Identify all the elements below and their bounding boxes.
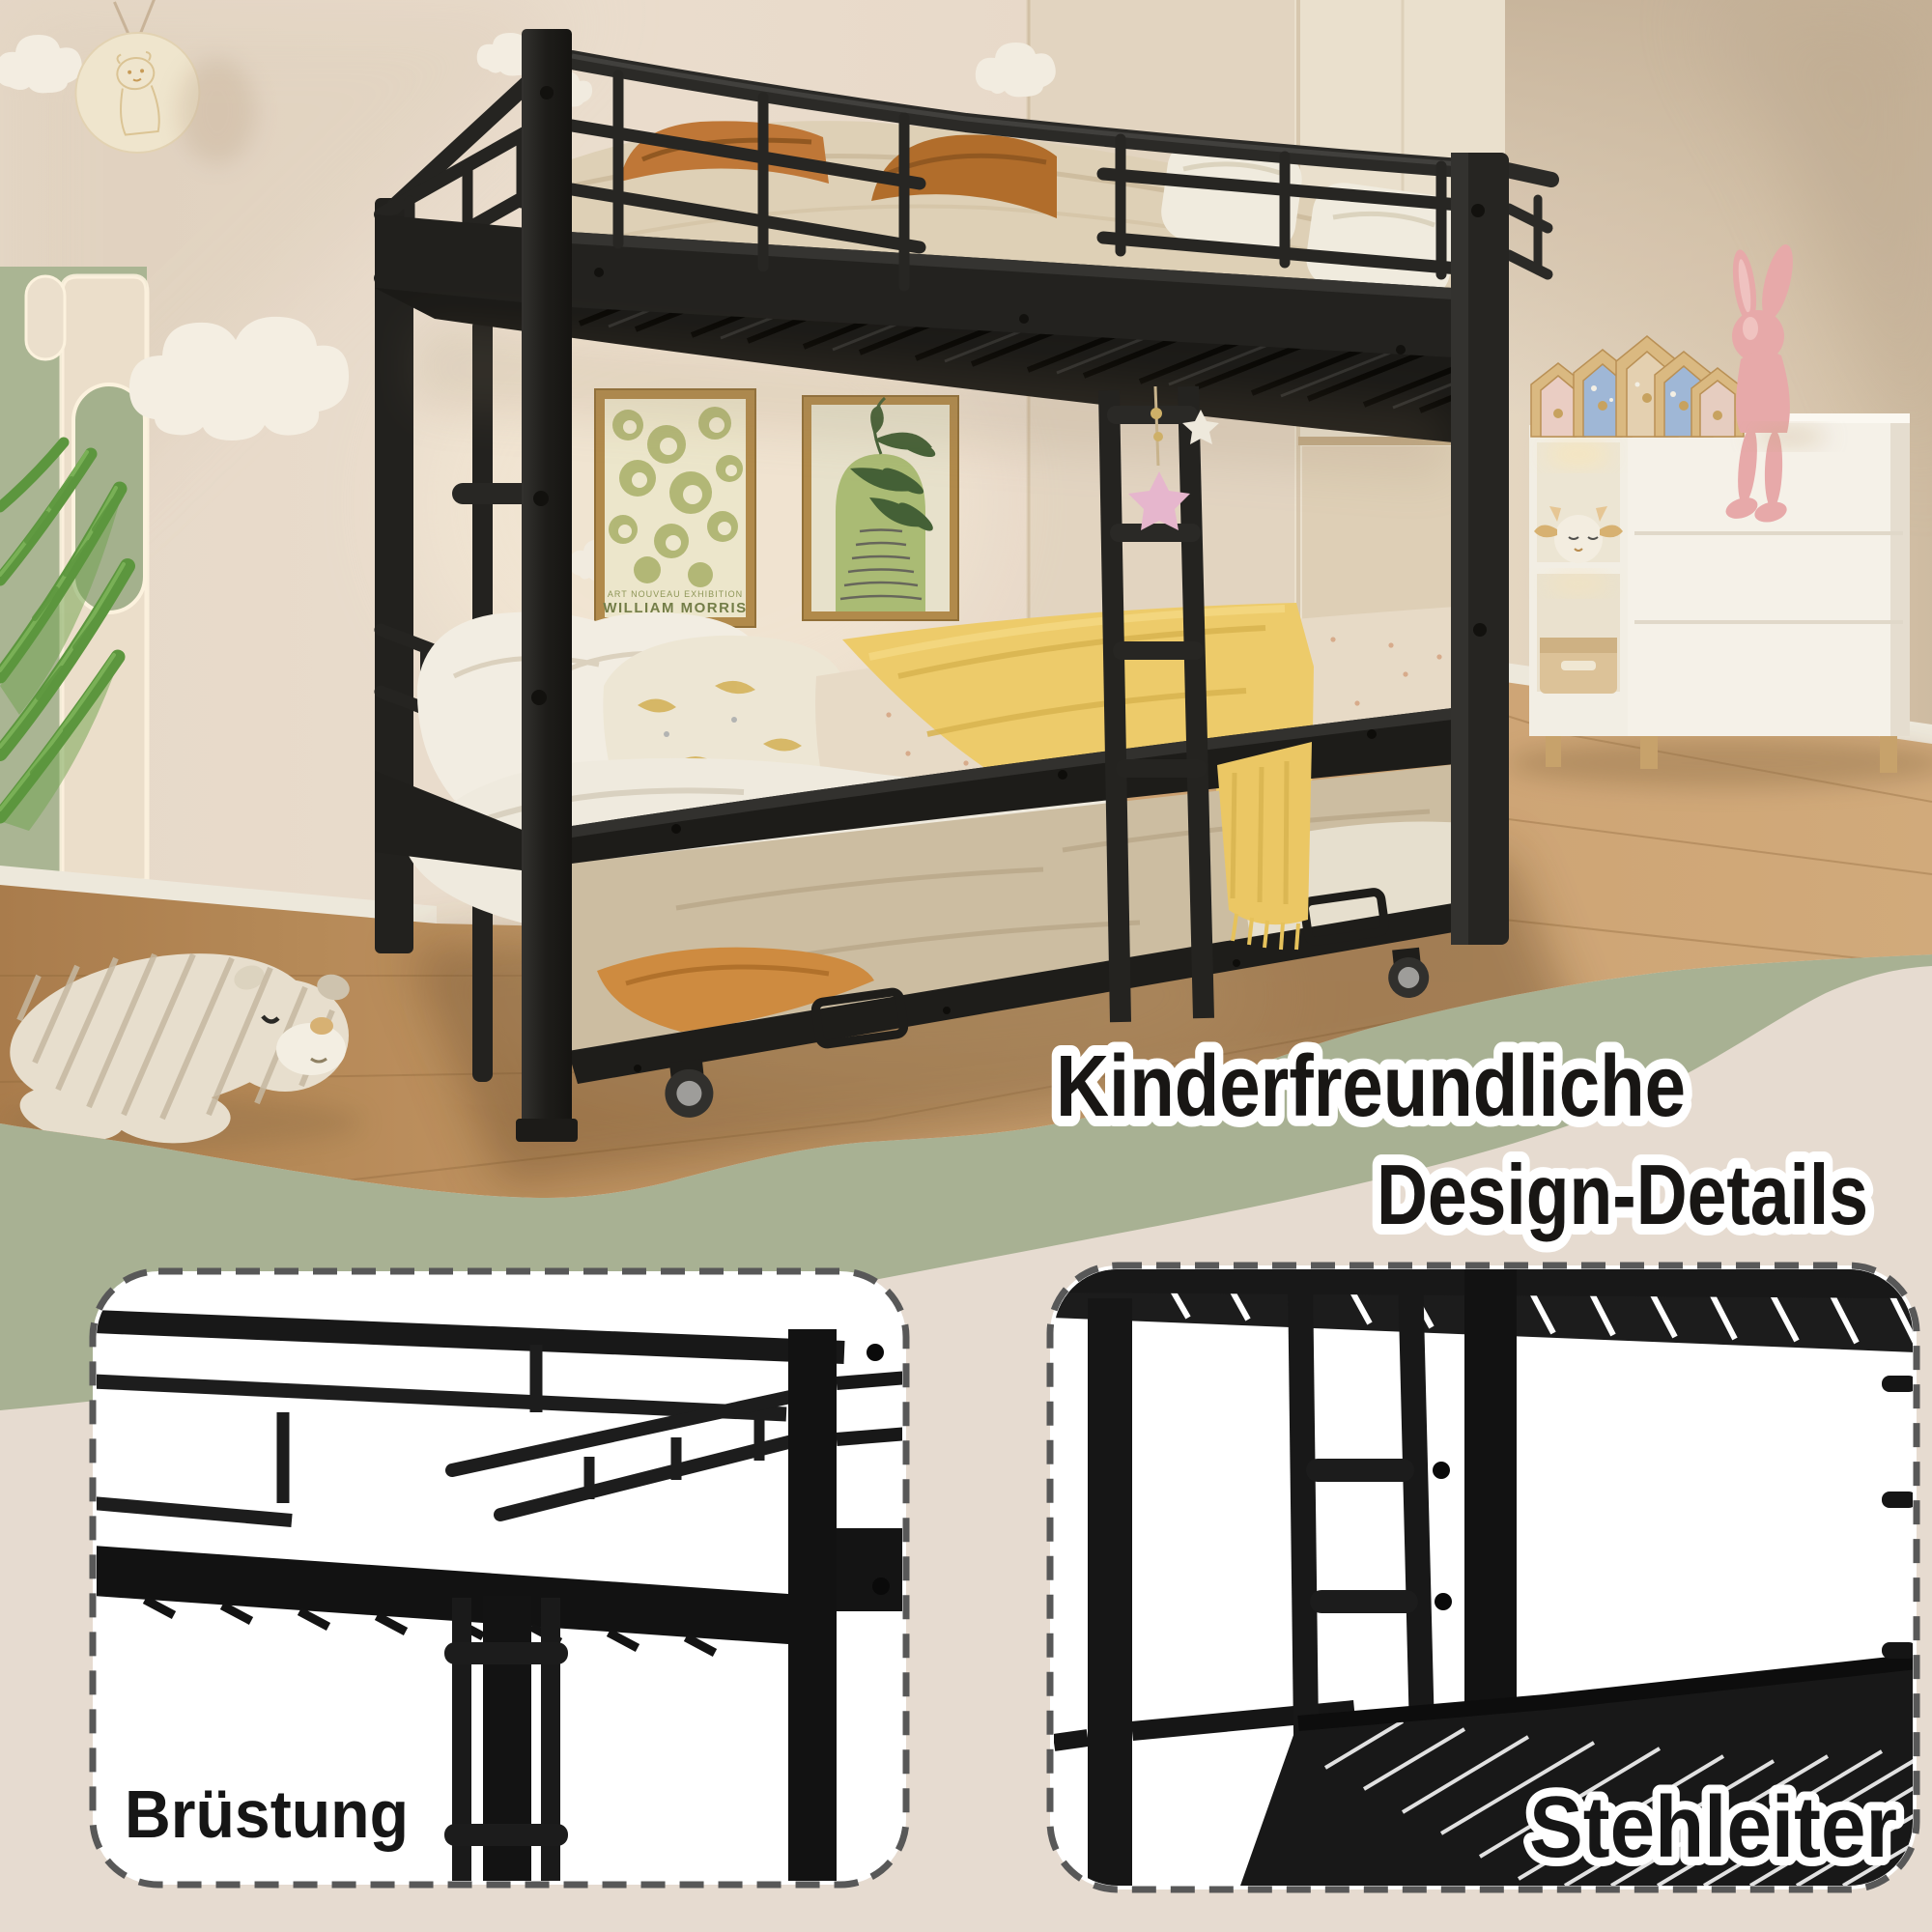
svg-text:Brüstung: Brüstung	[125, 1776, 409, 1852]
svg-text:Stehleiter: Stehleiter	[1529, 1779, 1897, 1876]
svg-text:Kinderfreundliche: Kinderfreundliche	[1056, 1038, 1686, 1135]
svg-text:Design-Details: Design-Details	[1377, 1147, 1868, 1242]
